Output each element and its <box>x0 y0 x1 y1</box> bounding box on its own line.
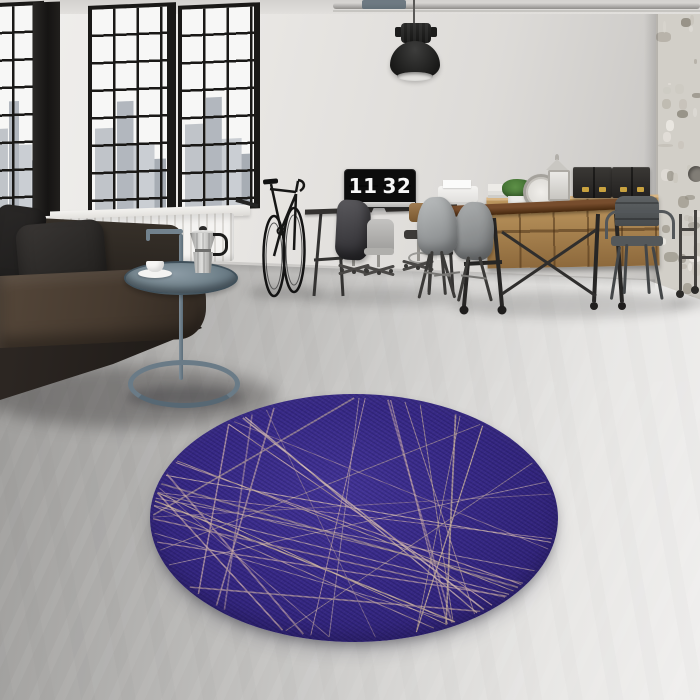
lamp-diffuser <box>397 72 433 81</box>
cart-caster <box>676 290 684 298</box>
cart-shelf <box>679 256 697 259</box>
lantern <box>548 170 570 201</box>
wall-distress-patch <box>693 108 697 117</box>
wall-distress-patch <box>694 59 697 64</box>
wall-distress-patch <box>679 99 688 110</box>
wall-distress-patch <box>663 87 671 94</box>
side-table-stem <box>179 234 183 380</box>
bicycle <box>234 168 320 302</box>
moka-pot-handle <box>213 233 228 256</box>
ceiling-pipe-thin <box>333 10 700 12</box>
pipe-fitting <box>362 0 406 9</box>
wall-distress-patch <box>658 144 673 147</box>
chair-casters <box>404 264 408 268</box>
wall-distress-patch <box>675 84 684 94</box>
rug-weave-texture <box>150 394 558 642</box>
lamp-lug <box>430 27 437 37</box>
tolix-chair-seat <box>611 236 663 246</box>
cart-frame <box>679 214 682 290</box>
cart-shelf <box>679 228 697 231</box>
wall-distress-patch <box>690 15 694 25</box>
cart-shadow <box>670 296 700 308</box>
wall-distress-patch <box>666 120 674 131</box>
wall-distress-patch <box>685 195 695 200</box>
loft-room-photo: 11 32 <box>0 0 700 700</box>
office-chair-seat <box>364 248 394 255</box>
clock-hours: 11 <box>349 174 378 198</box>
side-table-hook <box>146 229 150 241</box>
flip-clock: 11 32 <box>345 173 415 199</box>
box-seam <box>631 167 633 198</box>
wall-distress-patch <box>662 99 671 109</box>
wall-distress-patch <box>668 83 670 85</box>
paper-stack <box>443 180 471 188</box>
wall-disc <box>688 166 700 182</box>
side-table-tray <box>124 261 238 295</box>
wall-distress-patch <box>663 21 666 33</box>
storage-box-right <box>612 167 650 198</box>
cart-caster <box>691 286 699 294</box>
chair-casters <box>340 268 344 272</box>
box-seam <box>593 167 595 198</box>
wall-distress-patch <box>688 216 694 223</box>
shell-chair-front-left <box>415 197 469 301</box>
storage-box-left <box>573 167 612 198</box>
clock-minutes: 32 <box>383 174 412 198</box>
wall-distress-patch <box>656 32 671 42</box>
tolix-chair-arms <box>605 210 675 239</box>
pendant-lamp-cap <box>401 23 431 43</box>
wall-distress-patch <box>689 26 693 32</box>
chair-casters <box>365 269 369 273</box>
round-purple-rug <box>150 394 558 642</box>
wall-distress-patch <box>673 173 677 183</box>
window-mullions <box>92 6 167 215</box>
cart-frame <box>694 210 697 288</box>
window-middle <box>88 2 176 220</box>
chair-shell <box>416 196 458 255</box>
window-frame-column <box>33 2 60 217</box>
wall-distress-patch <box>678 141 684 149</box>
wall-distress-patch <box>663 132 671 142</box>
wall-distress-patch <box>664 252 677 262</box>
wall-distress-patch <box>692 93 700 98</box>
wall-distress-patch <box>677 110 688 118</box>
side-table-handle <box>146 229 183 234</box>
